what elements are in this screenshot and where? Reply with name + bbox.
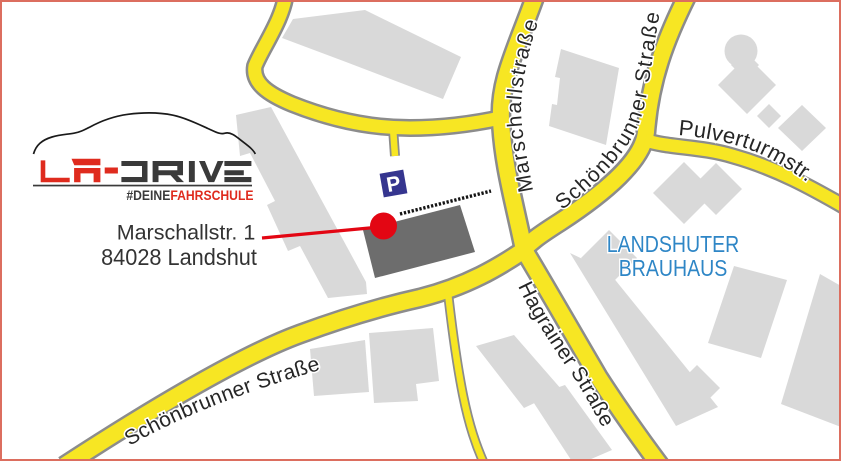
svg-text:84028 Landshut: 84028 Landshut (101, 244, 258, 270)
svg-text:BRAUHAUS: BRAUHAUS (619, 256, 728, 282)
svg-text:Marschallstr. 1: Marschallstr. 1 (117, 221, 256, 245)
svg-text:LANDSHUTER: LANDSHUTER (607, 232, 739, 258)
svg-text:#DEINEFAHRSCHULE: #DEINEFAHRSCHULE (126, 187, 253, 203)
